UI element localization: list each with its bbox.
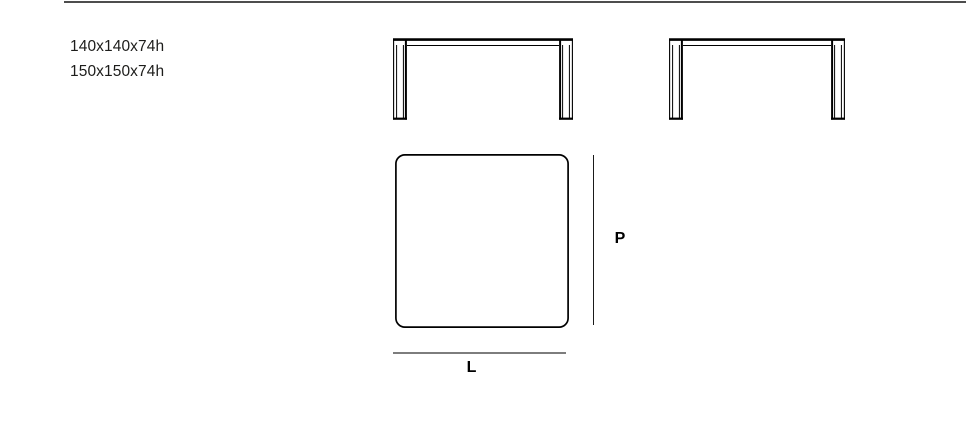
- top-rule: [64, 1, 966, 3]
- length-dimension-label: L: [461, 360, 482, 376]
- table-front-view-left: [393, 38, 573, 121]
- depth-dimension-line: [593, 155, 594, 325]
- table-top-view: [395, 154, 569, 328]
- size-spec-line-2: 150x150x74h: [70, 59, 164, 84]
- size-spec-line-1: 140x140x74h: [70, 34, 164, 59]
- size-specs: 140x140x74h 150x150x74h: [70, 34, 164, 84]
- length-dimension-line: [393, 352, 566, 354]
- table-front-view-right: [669, 38, 845, 121]
- depth-dimension-label: P: [610, 231, 630, 247]
- product-spec-sheet: 140x140x74h 150x150x74h: [0, 0, 966, 423]
